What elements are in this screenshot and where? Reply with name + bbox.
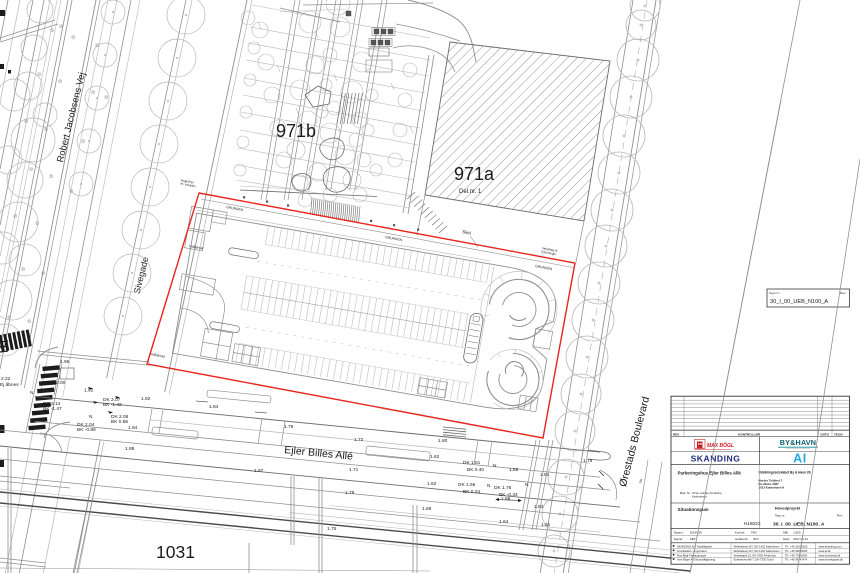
svg-text:www.skanding.com: www.skanding.com — [819, 545, 843, 549]
svg-text:Max Bögl Tiefbaugruppe: Max Bögl Tiefbaugruppe — [677, 553, 707, 557]
svg-text:DK 1.76: DK 1.76 — [494, 485, 512, 491]
svg-text:1031: 1031 — [156, 542, 195, 562]
svg-text:1.75: 1.75 — [327, 526, 337, 532]
svg-text:REV: REV — [673, 432, 680, 436]
svg-text:Del.nr. 1: Del.nr. 1 — [459, 189, 482, 195]
svg-text:BK -1.42: BK -1.42 — [103, 402, 122, 408]
svg-text:Ej åbnes: Ej åbnes — [0, 381, 19, 388]
svg-text:AI Arkitekter + Ingeniører: AI Arkitekter + Ingeniører — [677, 549, 707, 553]
svg-text:www.ai.dk: www.ai.dk — [819, 549, 832, 553]
svg-text:30_I_00_UEB_N100_A: 30_I_00_UEB_N100_A — [770, 299, 828, 305]
svg-text:1.92: 1.92 — [141, 396, 151, 402]
svg-text:Mål:: Mål: — [783, 531, 789, 535]
svg-text:1.62: 1.62 — [430, 454, 440, 460]
svg-text:1.62: 1.62 — [427, 481, 437, 487]
svg-text:1.88: 1.88 — [125, 446, 135, 452]
svg-text:1.78: 1.78 — [345, 490, 355, 496]
svg-text:N: N — [493, 463, 497, 469]
svg-text:1.76: 1.76 — [583, 458, 593, 464]
svg-text:1.79: 1.79 — [284, 424, 294, 430]
svg-text:1.96: 1.96 — [60, 359, 70, 365]
svg-text:Tegn.nr.:: Tegn.nr.: — [775, 514, 786, 518]
svg-text:30_I_00_UEB_N100_A: 30_I_00_UEB_N100_A — [773, 521, 825, 527]
svg-text:2.22: 2.22 — [1, 376, 11, 382]
svg-text:1.80: 1.80 — [438, 438, 448, 444]
svg-text:mne Bilger A/S Brandrådgivning: mne Bilger A/S Brandrådgivning — [677, 558, 716, 562]
svg-text:N: N — [487, 483, 491, 489]
svg-text:1.61: 1.61 — [540, 472, 550, 478]
svg-text:2016/326: 2016/326 — [690, 531, 702, 535]
svg-text:N: N — [89, 414, 93, 420]
svg-text:1.87: 1.87 — [254, 468, 264, 474]
svg-text:N: N — [525, 482, 529, 488]
svg-text:1013 København K: 1013 København K — [759, 486, 786, 490]
svg-text:971a: 971a — [454, 164, 495, 184]
svg-text:Tlf.: +45 70100000: Tlf.: +45 70100000 — [785, 553, 808, 557]
svg-text:Rev:: Rev: — [840, 291, 846, 295]
svg-text:www.maxboegl.dk: www.maxboegl.dk — [819, 553, 841, 557]
svg-text:Tlf.: +45 32680000: Tlf.: +45 32680000 — [785, 549, 808, 553]
svg-text:Udviklingsselskabet By & Havn: Udviklingsselskabet By & Havn I/S — [759, 470, 811, 474]
svg-text:1.56: 1.56 — [509, 467, 519, 473]
svg-text:SKANDING: SKANDING — [691, 453, 741, 463]
svg-text:Situationsplan: Situationsplan — [678, 507, 709, 512]
svg-text:BK -1.47: BK -1.47 — [43, 406, 62, 412]
svg-text:MAX BÖGL: MAX BÖGL — [707, 442, 734, 449]
svg-text:BY&HAVN: BY&HAVN — [780, 438, 816, 447]
svg-text:Tlf.: +45 86747474: Tlf.: +45 86747474 — [785, 558, 808, 562]
svg-text:1.72: 1.72 — [354, 437, 364, 443]
svg-text:1:500: 1:500 — [793, 531, 801, 535]
svg-text:KEP: KEP — [690, 537, 696, 541]
svg-text:KONTROLLØR: KONTROLLØR — [738, 432, 761, 436]
svg-text:1.64: 1.64 — [499, 519, 509, 525]
svg-text:AI: AI — [793, 452, 807, 466]
svg-text:2017-01-10: 2017-01-10 — [793, 537, 808, 541]
svg-text:1.58: 1.58 — [501, 496, 511, 502]
svg-text:Refshalevej 147, DK-1432 Køben: Refshalevej 147, DK-1432 København — [734, 549, 780, 553]
svg-text:Godkendt:: Godkendt: — [735, 537, 749, 541]
svg-text:1.61: 1.61 — [541, 522, 551, 528]
svg-text:Dato:: Dato: — [783, 537, 790, 541]
svg-text:DATO: DATO — [821, 432, 830, 436]
svg-text:BK -0.88: BK -0.88 — [77, 427, 96, 433]
svg-text:N: N — [30, 390, 34, 396]
svg-text:1.68: 1.68 — [422, 506, 432, 512]
svg-text:Tegner:: Tegner: — [674, 537, 684, 541]
svg-text:DK 1.61: DK 1.61 — [463, 460, 481, 466]
svg-text:2.00: 2.00 — [56, 380, 66, 386]
svg-text:Refshalevej 147, DK-1432 Køben: Refshalevej 147, DK-1432 København — [734, 545, 780, 549]
svg-text:TEGN: TEGN — [834, 432, 843, 436]
svg-text:DK 1.66: DK 1.66 — [458, 482, 476, 488]
svg-text:Kontrol:: Kontrol: — [735, 531, 745, 535]
svg-text:BK 0.86: BK 0.86 — [111, 419, 128, 425]
svg-text:971b: 971b — [276, 121, 316, 141]
svg-text:Enebærvej Allé 7, DK-7330 Schu: Enebærvej Allé 7, DK-7330 Schur — [734, 558, 774, 562]
svg-text:TAN: TAN — [751, 531, 757, 535]
svg-text:1.84: 1.84 — [209, 404, 219, 410]
svg-text:Rev:: Rev: — [837, 514, 843, 518]
svg-text:1.71: 1.71 — [349, 467, 359, 473]
svg-text:Sagsnr:: Sagsnr: — [674, 531, 684, 535]
svg-text:1.63: 1.63 — [534, 504, 544, 510]
svg-text:Tlf.: +45 31630100: Tlf.: +45 31630100 — [785, 545, 808, 549]
svg-text:BK 0.24: BK 0.24 — [463, 489, 480, 495]
svg-text:BK 0.40: BK 0.40 — [467, 467, 484, 473]
svg-text:Hovedprojekt: Hovedprojekt — [775, 506, 801, 511]
svg-text:H16023: H16023 — [744, 521, 761, 527]
svg-text:www.annettgaard.dk: www.annettgaard.dk — [819, 558, 844, 562]
svg-text:1.94: 1.94 — [128, 425, 138, 431]
svg-text:JKN: JKN — [753, 537, 758, 541]
svg-text:Vestergade 21, DK-7000 Frederi: Vestergade 21, DK-7000 Fredericia — [734, 553, 777, 557]
svg-text:Tegn.nr.:: Tegn.nr.: — [769, 291, 781, 295]
